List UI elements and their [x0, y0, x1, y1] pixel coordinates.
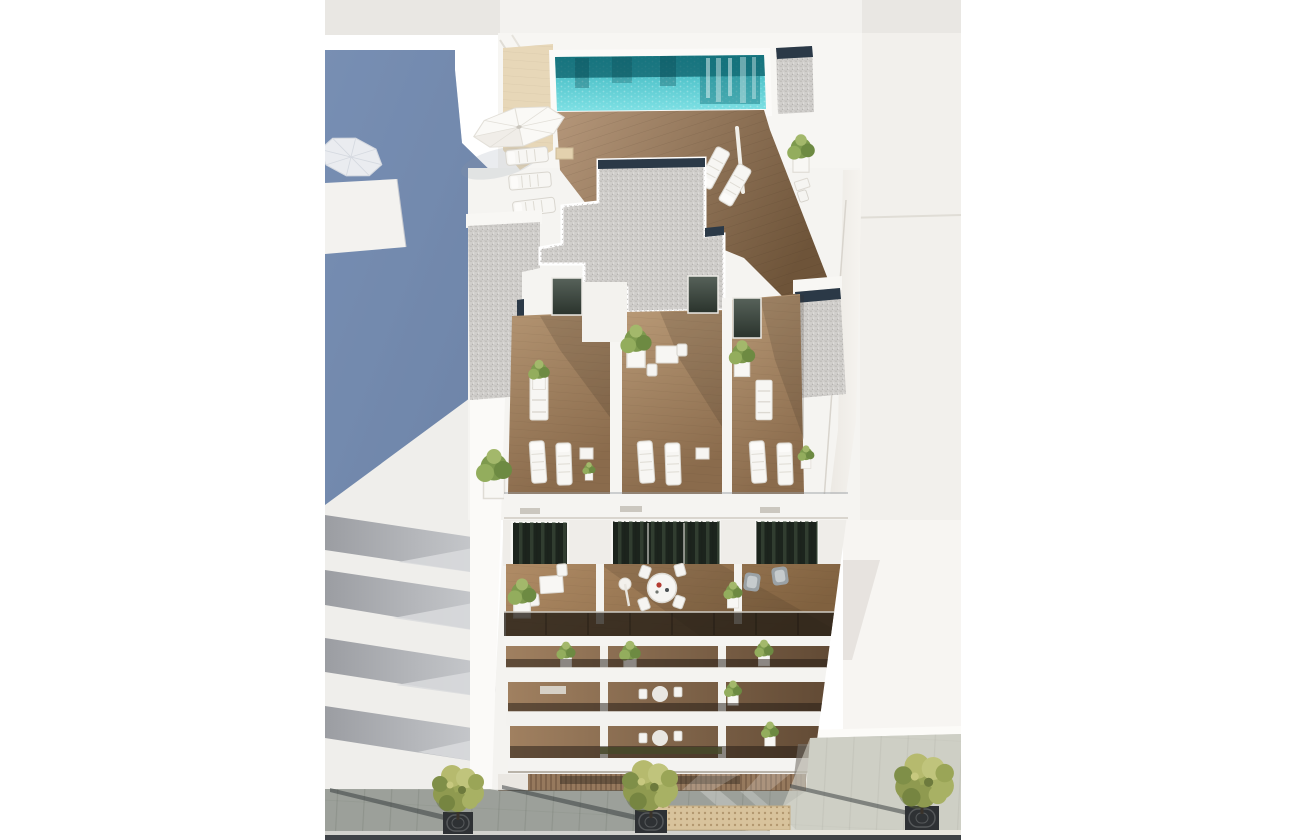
skylight-glass-edge	[776, 46, 813, 59]
side-table	[580, 448, 593, 459]
balcony-table	[652, 686, 668, 702]
round-dining-table	[648, 574, 677, 603]
terrace-door	[688, 276, 718, 313]
chair	[639, 689, 647, 699]
balcony-table	[652, 730, 668, 746]
facade	[498, 506, 850, 792]
swimming-pool	[555, 55, 766, 111]
neighbor-sunlit-terrace	[325, 179, 406, 254]
dining-table	[539, 575, 563, 594]
scene	[316, 0, 961, 840]
terrace-divider-wall	[722, 298, 732, 494]
vent-grille	[520, 508, 540, 514]
towel-caddy	[556, 148, 573, 159]
stair-bulkhead	[582, 282, 627, 342]
chair	[674, 687, 682, 697]
architectural-render	[0, 0, 1290, 840]
sun-lounger	[749, 441, 767, 484]
chair	[647, 364, 657, 376]
sky-band-center	[500, 0, 862, 35]
sun-lounger	[556, 443, 572, 485]
side-table	[696, 448, 709, 459]
chair	[674, 731, 682, 741]
render-canvas	[0, 0, 1290, 840]
vent-grille	[620, 506, 642, 512]
sun-lounger	[777, 443, 793, 485]
sun-lounger	[508, 172, 551, 191]
table-decor	[656, 582, 661, 587]
sun-lounger	[637, 441, 655, 484]
armchair	[771, 566, 789, 586]
sun-lounger	[665, 443, 681, 485]
balcony-furniture	[540, 686, 566, 694]
terrace-door	[552, 278, 582, 315]
chair	[677, 344, 687, 356]
road	[325, 835, 961, 840]
vent-grille	[760, 507, 780, 513]
chair	[557, 564, 568, 577]
glass-balustrade	[504, 612, 846, 636]
towel-ladder	[756, 380, 772, 420]
terrace-table	[656, 346, 678, 363]
glass-doors-band	[512, 521, 818, 566]
terrace-door	[733, 298, 761, 338]
sun-lounger	[529, 441, 547, 484]
armchair	[743, 572, 761, 592]
terrace-parapet	[504, 494, 848, 520]
chair	[639, 733, 647, 743]
